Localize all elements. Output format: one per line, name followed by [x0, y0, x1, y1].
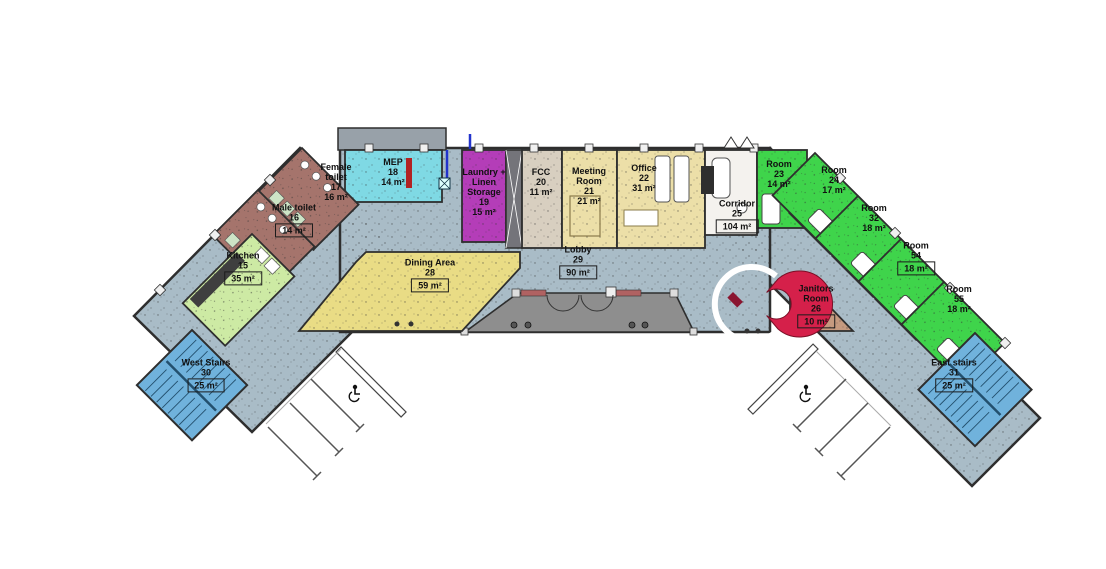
room-label-23: Room 23 14 m² [766, 159, 792, 189]
bed [674, 156, 689, 202]
floor-plan: Kitchen 15 35 m² Male toilet 16 14 m² Fe… [0, 0, 1106, 569]
roof-vent-triangles [724, 137, 754, 148]
room-label-mep: MEP 18 14 m² [381, 157, 405, 187]
bollard [629, 322, 635, 328]
room-label-corridor: Corridor 25 104 m² [716, 198, 759, 233]
service-box [701, 166, 714, 194]
room-label-laundry: Laundry + Linen Storage 19 15 m² [462, 167, 505, 217]
area-value: 18 m² [861, 223, 887, 233]
area-value: 17 m² [821, 185, 847, 195]
area-value: 10 m² [797, 315, 835, 329]
room-label-male-toilet: Male toilet 16 14 m² [272, 202, 316, 237]
bathtub [712, 158, 730, 198]
room-label-24: Room 24 17 m² [821, 165, 847, 195]
bollard [525, 322, 531, 328]
room-label-meeting-room: Meeting Room 21 21 m² [572, 166, 606, 206]
area-value: 14 m² [766, 179, 792, 189]
area-value: 15 m² [462, 207, 505, 217]
area-value: 14 m² [275, 224, 313, 238]
room-label-janitor: Janitors Room 26 10 m² [797, 283, 835, 328]
room-label-fcc: FCC 20 11 m² [529, 167, 552, 197]
area-value: 14 m² [381, 177, 405, 187]
area-value: 18 m² [897, 262, 935, 276]
area-value: 90 m² [559, 266, 597, 280]
elevator-shaft [506, 150, 522, 248]
area-value: 25 m² [187, 379, 225, 393]
bed [655, 156, 670, 202]
bollard [642, 322, 648, 328]
room-label-office: Office 22 31 m² [631, 163, 657, 193]
room-label-east-stairs: East stairs 31 25 m² [931, 357, 977, 392]
room-label-32: Room 32 18 m² [861, 203, 887, 233]
area-value: 104 m² [716, 220, 759, 234]
room-label-lobby: Lobby 29 90 m² [559, 244, 597, 279]
area-value: 31 m² [631, 183, 657, 193]
room-label-kitchen: Kitchen 15 35 m² [224, 250, 262, 285]
area-value: 35 m² [224, 272, 262, 286]
room-label-54: Room 54 18 m² [897, 240, 935, 275]
canopy [338, 128, 446, 150]
radiator [406, 158, 412, 188]
area-value: 21 m² [572, 196, 606, 206]
area-value: 18 m² [946, 304, 972, 314]
area-value: 16 m² [320, 192, 351, 202]
room-office-shape [617, 150, 705, 248]
wheelchair-icon [800, 385, 811, 402]
room-fcc-shape [522, 150, 562, 248]
area-value: 59 m² [411, 279, 449, 293]
wheelchair-icon [349, 385, 360, 402]
bollard [511, 322, 517, 328]
room-label-dining: Dining Area 28 59 m² [405, 257, 455, 292]
room-label-west-stairs: West Stairs 30 25 m² [182, 357, 231, 392]
desk [624, 210, 658, 226]
area-value: 11 m² [529, 187, 552, 197]
floor-plan-drawing [0, 0, 1106, 569]
room-label-female-toilet: Female toilet 17 16 m² [320, 162, 351, 202]
room-label-55: Room 55 18 m² [946, 284, 972, 314]
area-value: 25 m² [935, 379, 973, 393]
